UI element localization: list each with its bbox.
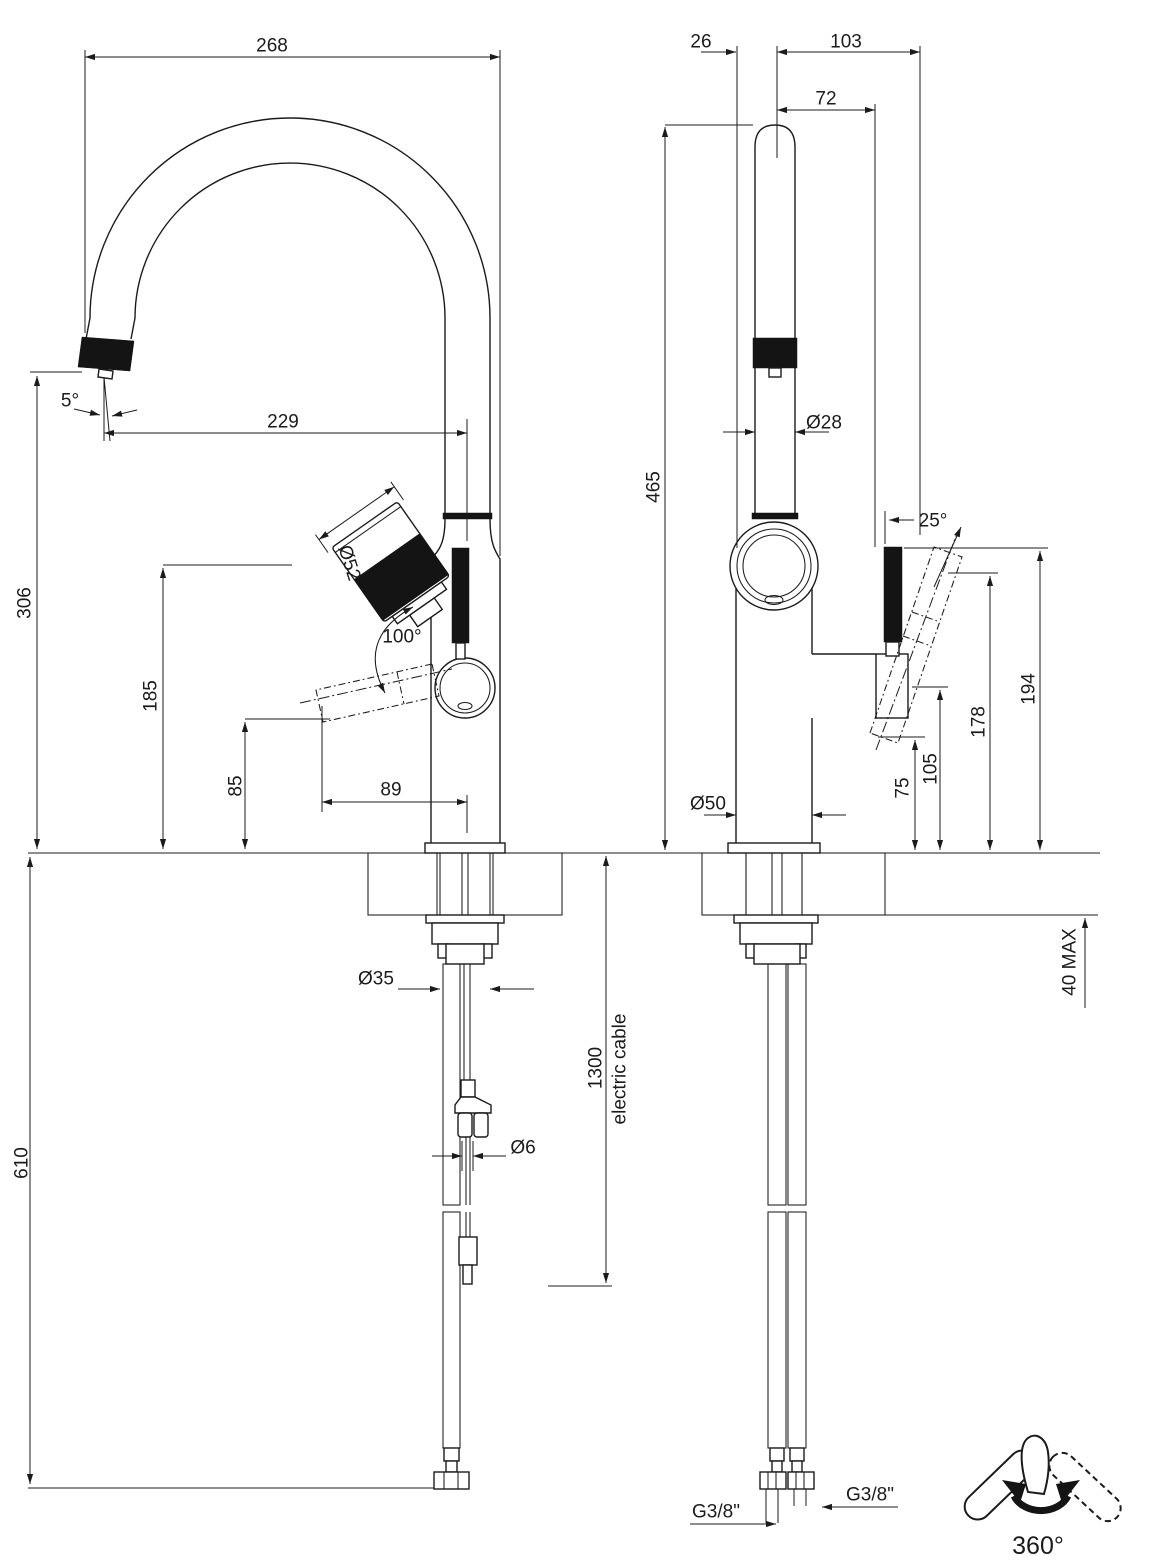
lever-up-position — [452, 548, 469, 643]
dim-axis-to-handle: 103 — [830, 32, 862, 53]
swivel-spout-knob — [1022, 1436, 1049, 1494]
base-flange — [728, 843, 820, 853]
front-view: 26 103 72 465 Ø28 25° 194 178 105 — [644, 32, 1099, 1525]
countertop-hatch — [802, 853, 885, 915]
swivel-360-icon: 360° — [959, 1436, 1126, 1560]
dim-mount-height: 105 — [921, 753, 942, 785]
side-view-counter — [368, 853, 562, 915]
dim-handle-tilt: 25° — [919, 511, 948, 532]
spout-joint — [752, 513, 798, 519]
dim-shank-diameter: Ø35 — [358, 969, 394, 990]
dim-spout-reach: 229 — [267, 412, 299, 433]
dim-handle-bottom-height: 75 — [893, 777, 914, 798]
side-view-spout — [78, 118, 492, 519]
dim-knob-to-axis: 26 — [690, 32, 711, 53]
label-hose-thread-left: G3/8" — [692, 1502, 740, 1523]
dim-spout-diameter: Ø28 — [806, 413, 842, 434]
dim-spout-width: 268 — [256, 36, 288, 57]
drawing-canvas: 268 5° 229 306 185 85 89 Ø52 100 — [0, 0, 1154, 1568]
swivel-arrow-arc — [1014, 1496, 1068, 1511]
front-view-under-counter — [734, 853, 818, 1523]
lever-up-position — [884, 547, 902, 642]
dim-lever-top-height: 194 — [1019, 673, 1040, 705]
hose-hex-nut — [760, 1472, 786, 1489]
cable-connector — [461, 1080, 475, 1097]
spout-outlet — [769, 368, 781, 377]
hose-hex-nut — [434, 1472, 469, 1489]
braided-hose — [768, 1212, 786, 1448]
dim-overall-height: 465 — [644, 471, 665, 503]
technical-drawing-page: 268 5° 229 306 185 85 89 Ø52 100 — [0, 0, 1154, 1568]
dim-max-counter-thickness: 40 MAX — [1060, 928, 1081, 996]
dim-cable-diameter: Ø6 — [510, 1138, 535, 1159]
aerator-knurl — [753, 338, 797, 368]
spout-outlet — [98, 369, 113, 379]
dim-handle-top-height: 178 — [969, 706, 990, 738]
dim-handle-reach: 89 — [380, 780, 401, 801]
braided-hose — [443, 1212, 460, 1448]
countertop-hatch — [493, 853, 562, 915]
side-view-handle-down-dashed — [300, 664, 452, 722]
countertop-hatch — [368, 853, 437, 915]
side-view: 268 5° 229 306 185 85 89 Ø52 100 — [12, 36, 631, 1490]
braided-hose — [788, 1212, 806, 1448]
mounting-nut — [432, 923, 498, 944]
front-view-spout — [752, 125, 798, 519]
dim-under-counter-length: 610 — [12, 1147, 33, 1179]
dim-base-diameter: Ø50 — [690, 794, 726, 815]
label-electric-cable: electric cable — [610, 1014, 631, 1125]
braided-hose — [788, 964, 806, 1205]
dim-spout-angle: 5° — [61, 391, 79, 412]
front-view-dimensions: 26 103 72 465 Ø28 25° 194 178 105 — [644, 32, 1086, 1525]
braided-hose — [443, 964, 460, 1205]
side-view-dimensions: 268 5° 229 306 185 85 89 Ø52 100 — [12, 36, 631, 1489]
swivel-arm-dashed — [1044, 1447, 1126, 1526]
countertop-hatch — [702, 853, 746, 915]
dim-axis-to-lever: 72 — [815, 89, 836, 110]
dim-lever-height: 185 — [141, 680, 162, 712]
label-hose-thread-right: G3/8" — [846, 1485, 894, 1506]
aerator-knurl — [78, 337, 134, 371]
cable-end-connector — [459, 1237, 477, 1265]
front-view-body — [728, 522, 908, 853]
hose-hex-nut — [788, 1472, 814, 1489]
dim-cable-length: 1300 — [586, 1047, 607, 1089]
dim-handle-rotation: 100° — [382, 627, 421, 648]
dim-spout-height: 306 — [15, 587, 36, 619]
mounting-nut — [740, 923, 812, 944]
braided-hose — [768, 964, 786, 1205]
label-swivel-range: 360° — [1012, 1532, 1064, 1560]
side-view-under-counter — [426, 853, 504, 1489]
dim-handle-down-height: 85 — [226, 775, 247, 796]
front-view-counter — [702, 853, 1098, 915]
base-flange — [425, 843, 505, 853]
